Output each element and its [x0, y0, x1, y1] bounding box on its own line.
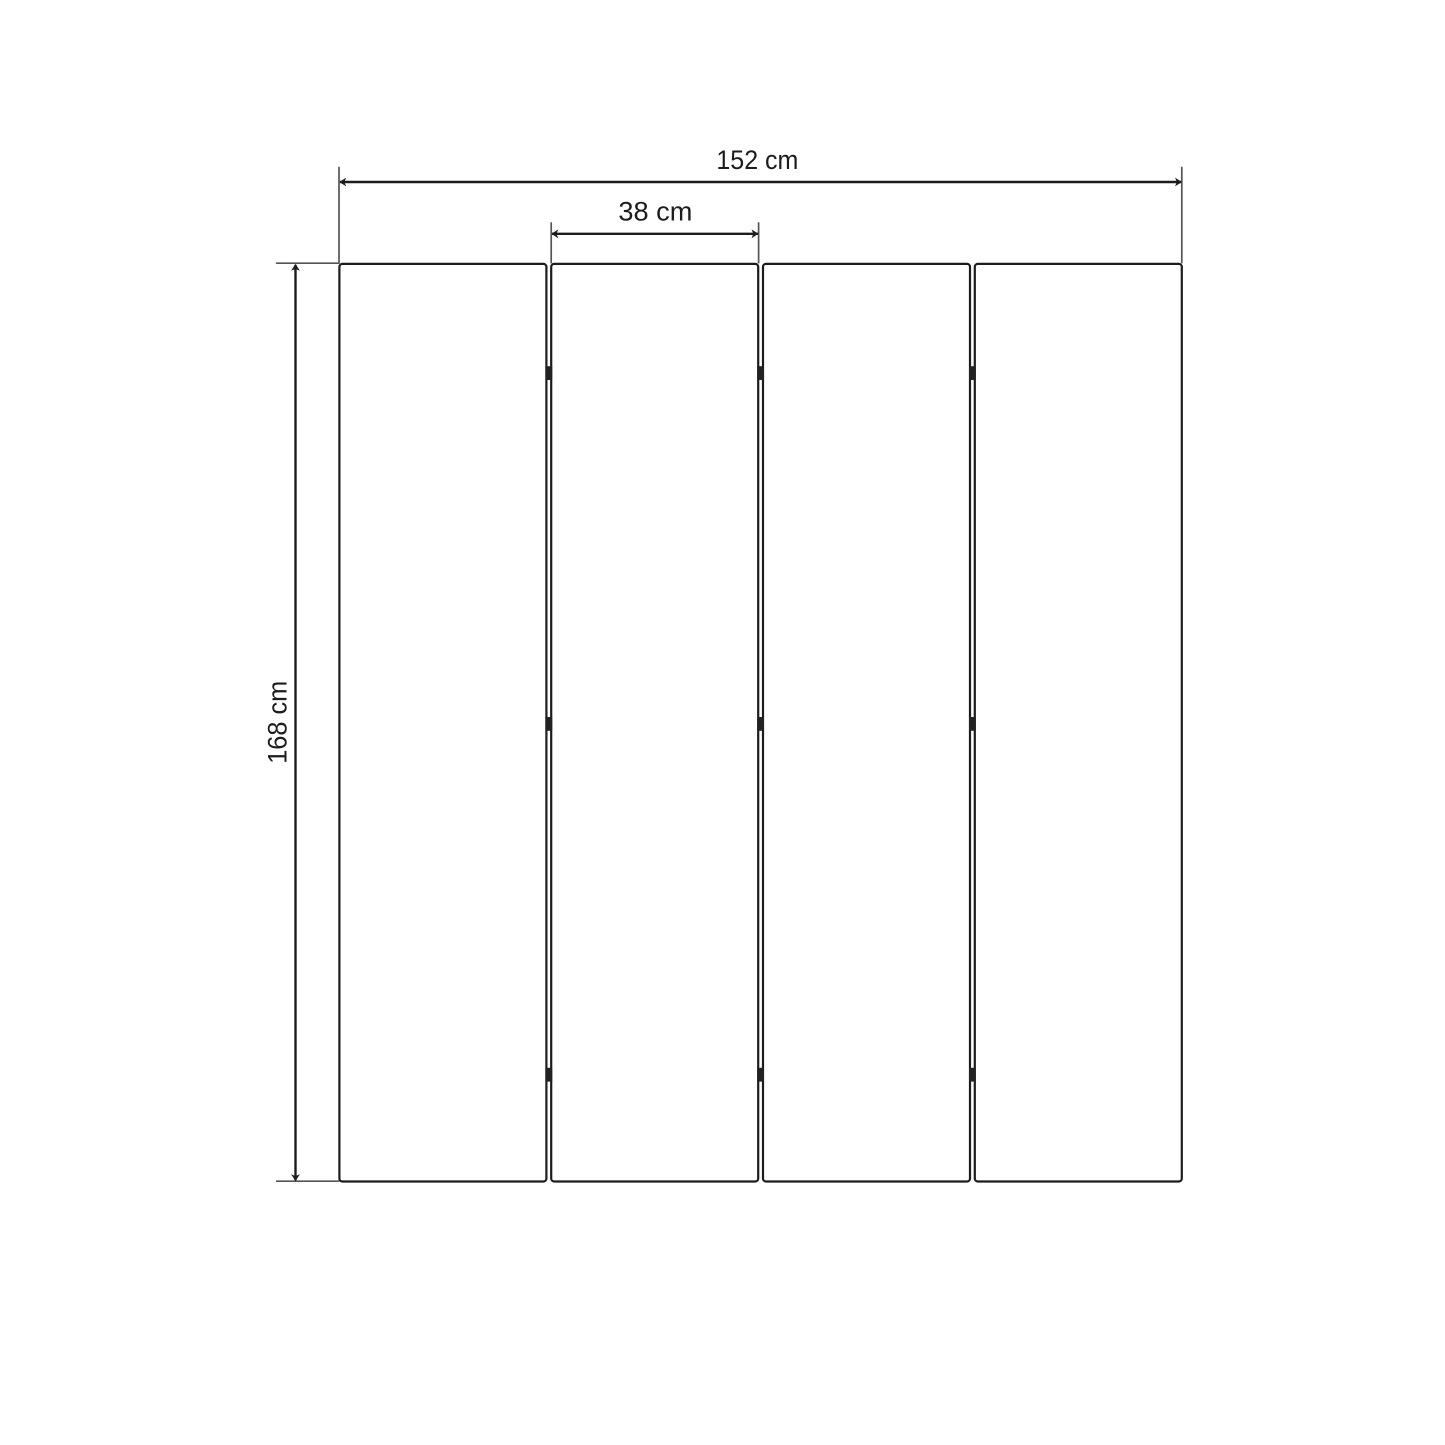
- svg-text:168 cm: 168 cm: [263, 681, 293, 764]
- svg-text:152 cm: 152 cm: [716, 145, 798, 175]
- svg-text:38 cm: 38 cm: [618, 196, 692, 226]
